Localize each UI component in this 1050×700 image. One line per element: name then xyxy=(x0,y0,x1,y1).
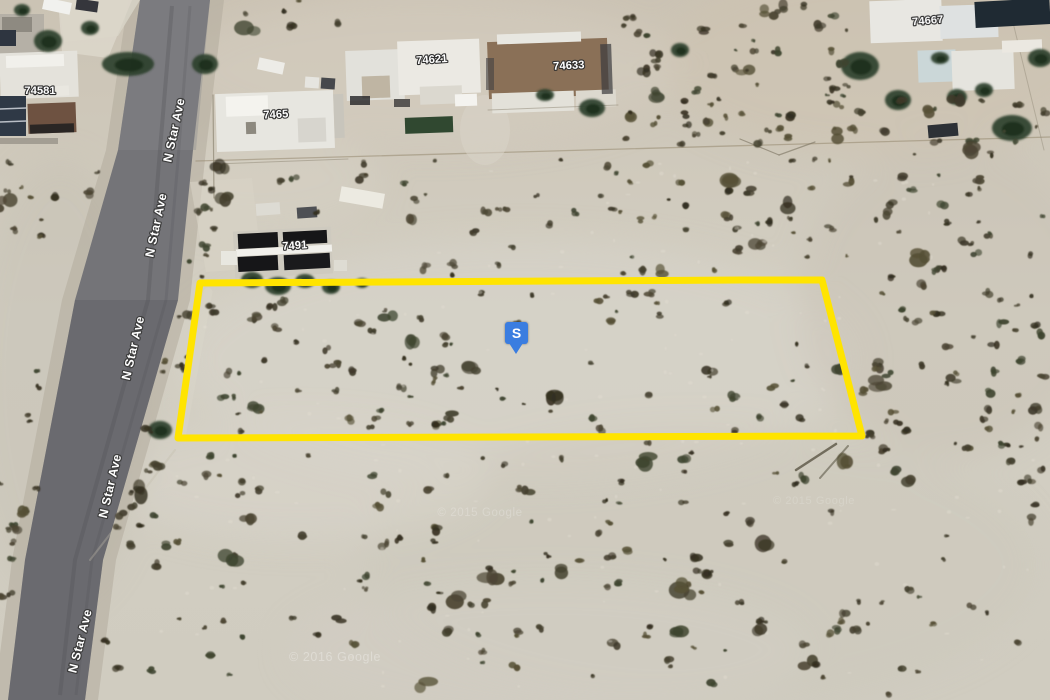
satellite-map-view[interactable]: © 2015 Google© 2015 Google© 2016 GoogleN… xyxy=(0,0,1050,700)
address-label-74581: 74581 xyxy=(24,85,55,97)
address-label-7465: 7465 xyxy=(263,108,289,121)
satellite-imagery: © 2015 Google© 2015 Google© 2016 GoogleN… xyxy=(0,0,1050,700)
address-label-74621: 74621 xyxy=(416,53,448,67)
marker-label: S xyxy=(512,325,521,341)
marker-pin-icon[interactable]: S xyxy=(505,322,528,344)
watermark-text: © 2015 Google xyxy=(437,507,522,519)
watermark-text: © 2016 Google xyxy=(289,650,381,664)
address-label-7491: 7491 xyxy=(282,239,308,253)
address-label-74633: 74633 xyxy=(553,59,585,73)
watermark-text: © 2015 Google xyxy=(773,495,855,507)
marker-pin-tip-icon xyxy=(509,343,523,354)
